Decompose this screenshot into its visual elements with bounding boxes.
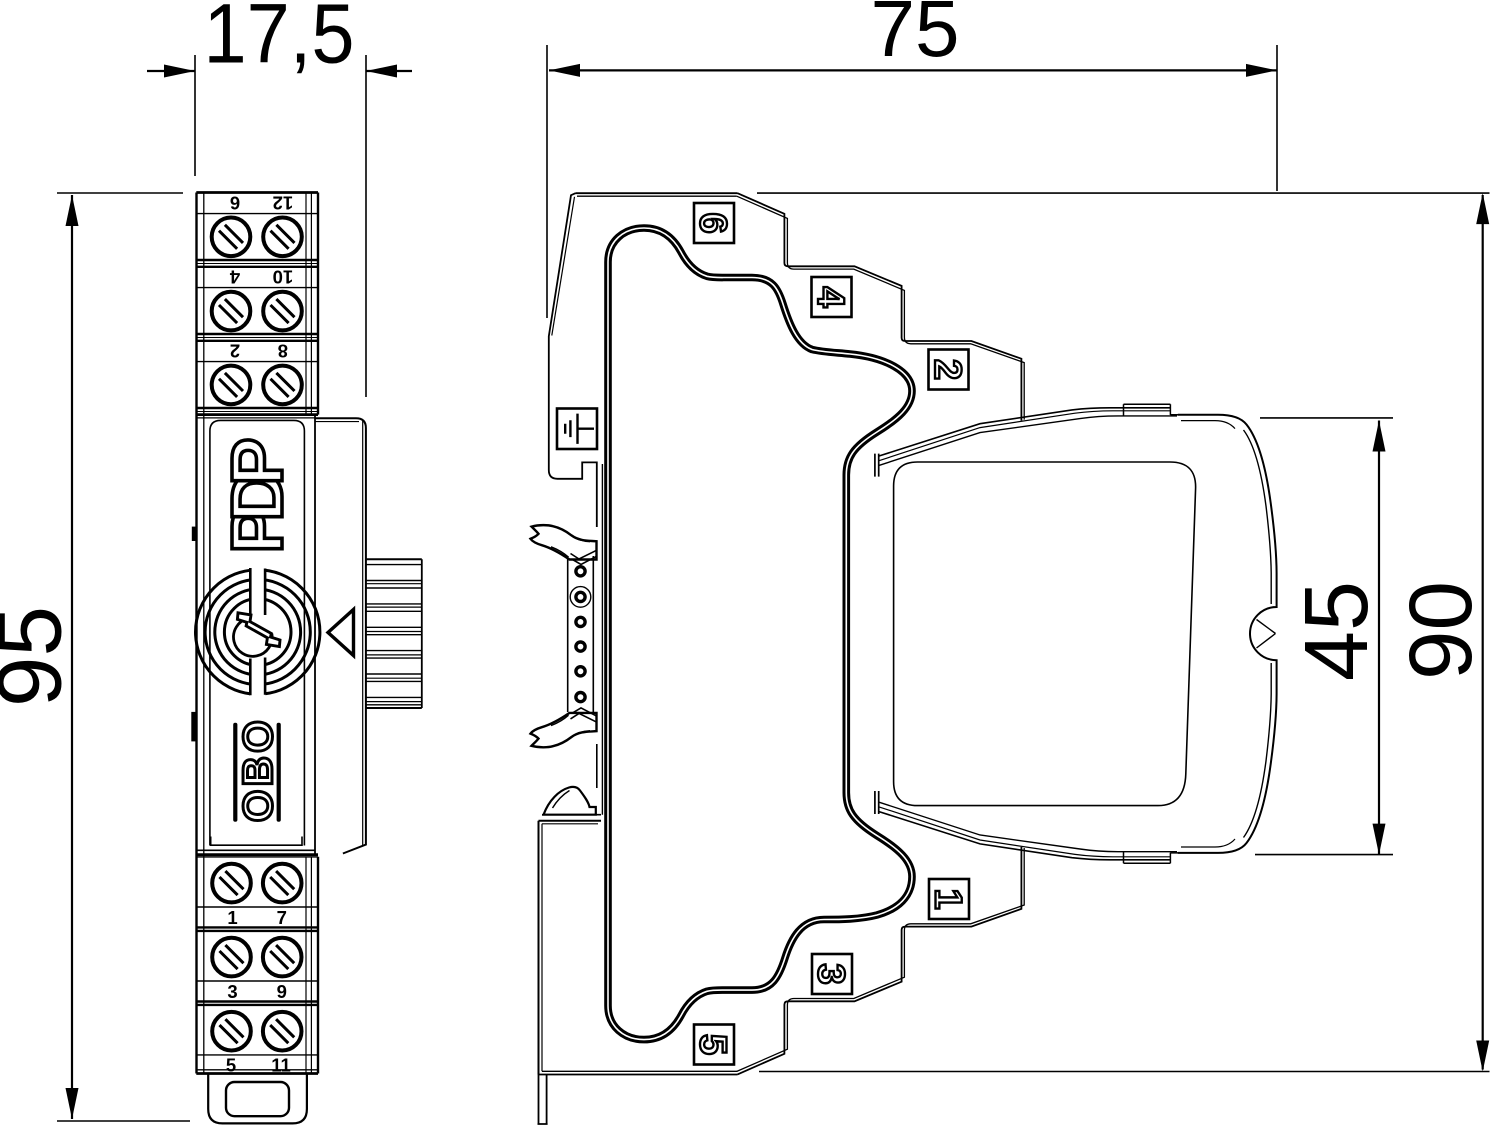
svg-text:5: 5 bbox=[692, 1034, 734, 1055]
svg-text:17,5: 17,5 bbox=[204, 0, 355, 81]
svg-text:90: 90 bbox=[1390, 581, 1490, 680]
svg-text:9: 9 bbox=[277, 981, 287, 1002]
svg-text:75: 75 bbox=[871, 0, 960, 73]
svg-text:4: 4 bbox=[229, 267, 240, 288]
svg-text:6: 6 bbox=[692, 212, 734, 233]
svg-text:4: 4 bbox=[809, 286, 851, 307]
svg-text:1: 1 bbox=[927, 888, 969, 909]
svg-text:2: 2 bbox=[926, 359, 968, 380]
svg-text:2: 2 bbox=[230, 341, 240, 362]
svg-text:3: 3 bbox=[227, 981, 237, 1002]
svg-text:3: 3 bbox=[810, 963, 852, 984]
svg-text:12: 12 bbox=[273, 193, 294, 214]
svg-text:45: 45 bbox=[1287, 581, 1387, 681]
svg-text:1: 1 bbox=[227, 907, 237, 928]
svg-text:95: 95 bbox=[0, 606, 80, 707]
svg-text:PDP: PDP bbox=[218, 438, 298, 554]
svg-text:10: 10 bbox=[273, 267, 294, 288]
svg-text:OBO: OBO bbox=[234, 720, 281, 822]
svg-text:7: 7 bbox=[277, 907, 287, 928]
svg-text:6: 6 bbox=[230, 193, 240, 214]
svg-text:8: 8 bbox=[278, 341, 288, 362]
